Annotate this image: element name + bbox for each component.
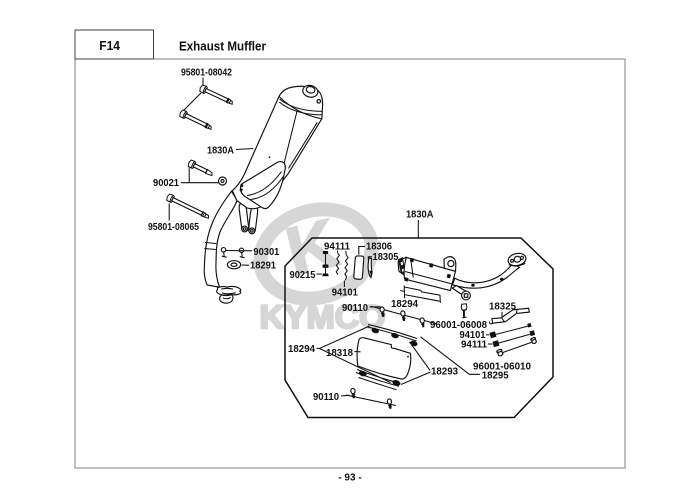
svg-text:18291: 18291 [250, 261, 277, 272]
svg-text:18306: 18306 [366, 242, 393, 253]
svg-text:90110: 90110 [342, 303, 368, 314]
svg-text:18294: 18294 [391, 299, 419, 310]
svg-text:18294: 18294 [288, 344, 316, 355]
svg-text:18293: 18293 [431, 367, 459, 378]
svg-text:F14: F14 [99, 38, 120, 53]
svg-text:94111: 94111 [461, 340, 488, 351]
svg-text:18295: 18295 [482, 371, 510, 382]
svg-text:90110: 90110 [313, 392, 339, 403]
svg-text:- 93 -: - 93 - [338, 473, 361, 484]
svg-text:1830A: 1830A [207, 146, 234, 157]
svg-text:90021: 90021 [153, 178, 180, 189]
svg-text:90301: 90301 [253, 247, 280, 258]
svg-text:18325: 18325 [489, 302, 517, 313]
svg-text:95801-08042: 95801-08042 [181, 68, 232, 79]
svg-text:95801-08065: 95801-08065 [148, 222, 200, 233]
svg-text:90215: 90215 [290, 270, 317, 281]
svg-text:18305: 18305 [373, 252, 400, 263]
svg-text:1830A: 1830A [406, 210, 434, 221]
svg-text:94101: 94101 [332, 288, 359, 299]
svg-text:Exhaust Muffler: Exhaust Muffler [179, 38, 266, 53]
